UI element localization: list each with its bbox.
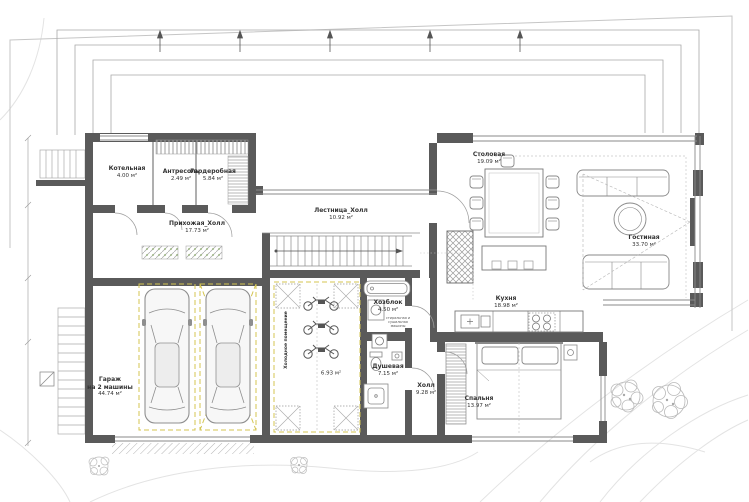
room-area: 13.97 м² <box>465 402 494 409</box>
dining-chair <box>470 197 483 209</box>
room-label-bedroom: Спальня 13.97 м² <box>465 395 494 409</box>
room-name: Прихожая_Холл <box>169 220 225 228</box>
sofa-top <box>577 170 669 196</box>
sofa-bottom <box>583 255 669 289</box>
room-name: Хозблок <box>373 299 402 307</box>
cold-store-area-label: 6.93 м² <box>321 371 341 378</box>
entry-marker <box>40 372 54 386</box>
roof-outline <box>57 30 699 135</box>
room-label-stair-hall: Лестница_Холл 10.92 м² <box>314 207 367 221</box>
room-name-2: на 2 машины <box>87 384 133 392</box>
room-area: 4.00 м² <box>109 172 146 179</box>
tall-cabinet <box>447 231 473 283</box>
room-name: Холодное помещение <box>284 311 290 369</box>
kitchen-island <box>482 246 546 270</box>
nightstand <box>564 345 577 360</box>
room-area: 17.73 м² <box>169 227 225 234</box>
shrub-1 <box>89 457 109 475</box>
dining-chair <box>470 176 483 188</box>
dimension-line <box>25 135 31 446</box>
room-area: 5.84 м² <box>190 175 236 182</box>
storage-square-3 <box>276 406 300 430</box>
shower-tray <box>364 384 388 408</box>
room-area: 44.74 м² <box>87 391 133 398</box>
motorcycle-2 <box>304 321 338 334</box>
room-label-garage: Гараж на 2 машины 44.74 м² <box>87 376 133 398</box>
room-area: 18.98 м² <box>494 302 518 309</box>
room-label-shower: Душевая 7.15 м² <box>372 363 403 377</box>
room-name: Душевая <box>372 363 403 371</box>
doormat-2 <box>186 246 222 259</box>
room-name: Гостиная <box>628 234 659 242</box>
room-area: 7.15 м² <box>372 370 403 377</box>
kitchen-counter <box>455 311 583 332</box>
exterior-stair-top <box>40 150 85 178</box>
room-name: Кухня <box>494 295 518 303</box>
room-name: Гардеробная <box>190 168 236 176</box>
dining-chair <box>546 176 559 188</box>
exterior-stair-left <box>58 308 85 434</box>
bathroom-sink <box>392 352 402 360</box>
room-name: Холл <box>416 382 436 390</box>
dining-chair <box>546 218 559 230</box>
room-area: 10.92 м² <box>314 214 367 221</box>
room-name: Спальня <box>465 395 494 403</box>
room-label-utility: Хозблок 4.50 м² <box>373 299 402 313</box>
bedroom-wardrobe <box>446 344 466 424</box>
room-label-hall: Холл 9.28 м² <box>416 382 436 396</box>
room-name: Лестница_Холл <box>314 207 367 215</box>
room-label-wardrobe: Гардеробная 5.84 м² <box>190 168 236 182</box>
room-area: 4.50 м² <box>373 306 402 313</box>
room-area: 19.09 м² <box>473 158 505 165</box>
room-area: 6.93 м² <box>321 371 341 378</box>
room-label-cold-store: Холодное помещение <box>284 311 290 369</box>
bathtub <box>364 281 410 296</box>
dining-chair <box>546 197 559 209</box>
room-label-boiler: Котельная 4.00 м² <box>109 165 146 179</box>
storage-square-4 <box>334 406 358 430</box>
room-name: Гараж <box>87 376 133 384</box>
stair-overhead-hatch <box>156 140 248 154</box>
room-area: 33.70 м² <box>628 241 659 248</box>
room-label-entry-hall: Прихожая_Холл 17.73 м² <box>169 220 225 234</box>
garage-apron-hatch <box>112 443 254 454</box>
dining-table <box>485 169 543 237</box>
car-2 <box>203 289 253 423</box>
section-arrows <box>158 31 523 52</box>
coffee-table <box>614 203 646 235</box>
storage-square-1 <box>276 284 300 308</box>
annotation-text: стиральная и сушильная машины <box>386 316 410 328</box>
floor-plan-page: Котельная 4.00 м² Антресоль 2.49 м² Гард… <box>0 0 749 502</box>
car-1 <box>142 289 192 423</box>
doormat-1 <box>142 246 178 259</box>
room-label-kitchen: Кухня 18.98 м² <box>494 295 518 309</box>
motorcycle-1 <box>304 297 338 310</box>
floor-plan-drawing <box>0 0 749 502</box>
tree-large-2 <box>653 383 688 419</box>
room-label-dining: Столовая 19.09 м² <box>473 151 505 165</box>
room-label-living: Гостиная 33.70 м² <box>628 234 659 248</box>
machines-annotation: стиральная и сушильная машины <box>383 316 413 328</box>
motorcycle-3 <box>304 345 338 358</box>
room-name: Столовая <box>473 151 505 159</box>
washing-machine <box>372 334 387 348</box>
room-area: 9.28 м² <box>416 389 436 396</box>
staircase <box>262 233 420 266</box>
dining-chair <box>470 218 483 230</box>
tree-large-1 <box>611 380 643 412</box>
room-name: Котельная <box>109 165 146 173</box>
